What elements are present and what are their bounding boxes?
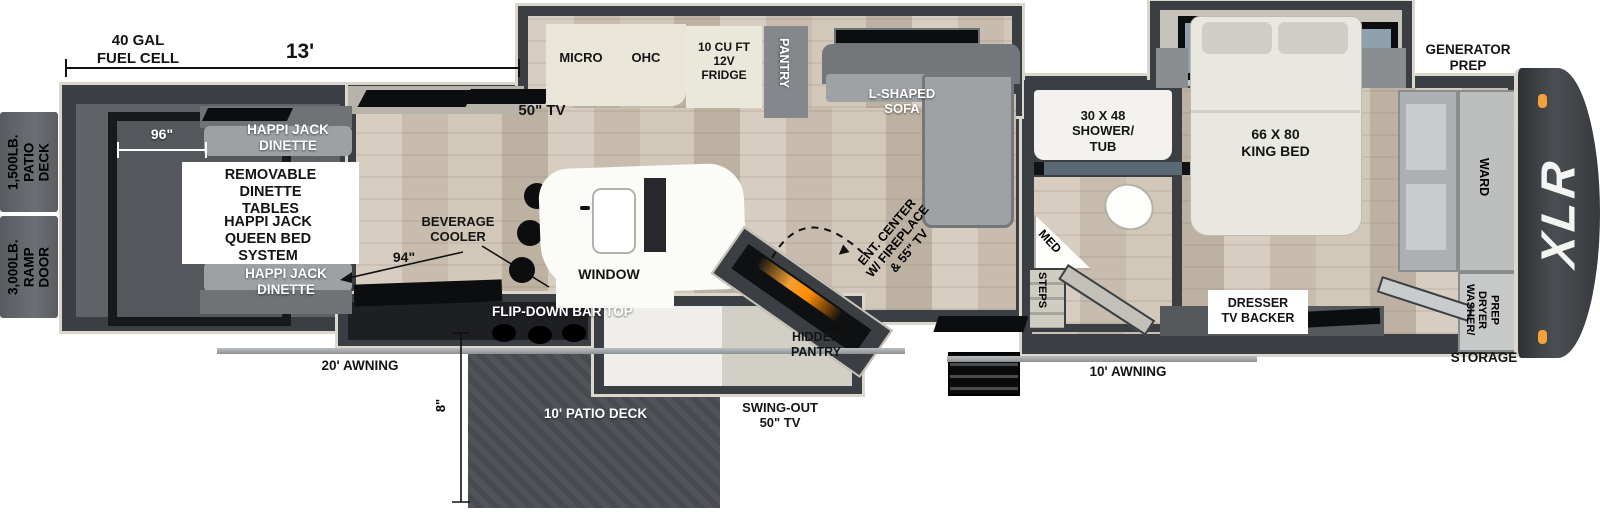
steps-label: STEPS (1035, 272, 1048, 308)
ohc-label: OHC (622, 50, 670, 65)
micro-label: MICRO (552, 50, 610, 65)
hidden-pantry-label: HIDDEN PANTRY (776, 330, 856, 360)
awning-10-label: 10' AWNING (1076, 364, 1180, 380)
dinette-bottom-label: HAPPI JACK DINETTE (231, 266, 341, 298)
washer-dryer-label: WASHER/ DRYER PREP (1464, 270, 1500, 350)
floorplan-canvas: 1,500LB. PATIO DECK 3,000LB. RAMP DOOR R… (0, 0, 1600, 513)
storage-label: STORAGE (1440, 350, 1528, 366)
king-bed-label: 66 X 80 KING BED (1228, 126, 1323, 159)
fridge-label: 10 CU FT 12V FRIDGE (688, 40, 760, 82)
ward-label: WARD (1476, 158, 1491, 196)
ramp-door-capacity-label: 3,000LB. RAMP DOOR (0, 216, 58, 318)
queen-bed-system-label: HAPPI JACK QUEEN BED SYSTEM (184, 214, 352, 265)
dresser-label: DRESSER TV BACKER (1208, 296, 1308, 326)
awning-20-label: 20' AWNING (308, 358, 412, 374)
patio-deck-capacity-label: 1,500LB. PATIO DECK (0, 112, 58, 212)
garage-width-dim-label: 96" (128, 126, 196, 143)
med-cabinet-label: MED (1026, 222, 1072, 262)
beverage-cooler-label: BEVERAGE COOLER (414, 214, 502, 245)
flip-bar-label: FLIP-DOWN BAR TOP (492, 304, 662, 320)
bar-wall-dim-label: 94" (382, 249, 426, 266)
tv-50-label: 50" TV (510, 102, 574, 120)
patio-deck-label: 10' PATIO DECK (528, 406, 663, 422)
generator-prep-label: GENERATOR PREP (1422, 42, 1514, 74)
removable-tables-label: REMOVABLE DINETTE TABLES (182, 167, 359, 218)
pantry-label: PANTRY (776, 38, 791, 88)
swing-tv-label: SWING-OUT 50" TV (730, 400, 830, 431)
sofa-label: L-SHAPED SOFA (856, 86, 948, 117)
garage-length-label: 13' (250, 40, 350, 65)
ent-center-label: ENT. CENTER W/ FIREPLACE & 55" TV (838, 192, 958, 292)
shower-label: 30 X 48 SHOWER/ TUB (1060, 108, 1146, 154)
fuel-cell-label: 40 GAL FUEL CELL (68, 32, 208, 67)
dinette-top-label: HAPPI JACK DINETTE (233, 122, 343, 154)
deck-drop-dim-label: 8" (430, 385, 454, 425)
window-label: WINDOW (566, 266, 652, 283)
